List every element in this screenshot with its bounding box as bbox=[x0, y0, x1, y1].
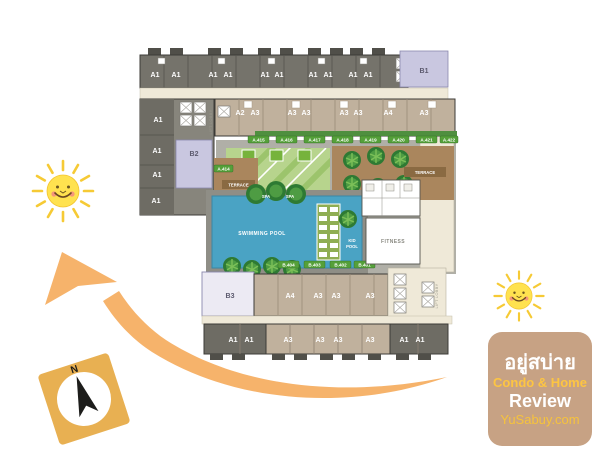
lift-left-3 bbox=[180, 115, 192, 126]
unit-label: A3 bbox=[316, 337, 325, 344]
unit-label: A1 bbox=[229, 337, 238, 344]
brand-thai-name: อยู่สบ่าย bbox=[488, 353, 592, 373]
unit-b3-label: B3 bbox=[226, 293, 235, 300]
terrace-tag: A.414 bbox=[217, 167, 230, 172]
terrace-label-right: TERRACE bbox=[415, 170, 435, 175]
sun-icon-left bbox=[33, 161, 93, 221]
unit-label: A1 bbox=[416, 337, 425, 344]
unit-label: A3 bbox=[354, 110, 363, 117]
garden-tag: A.420 bbox=[392, 138, 405, 143]
pool-tag: B.402 bbox=[334, 263, 347, 268]
lift-lobby-bottom: LIFT LOBBY bbox=[388, 268, 446, 318]
unit-label: A1 bbox=[261, 72, 270, 79]
unit-label: A1 bbox=[400, 337, 409, 344]
unit-label: A3 bbox=[284, 337, 293, 344]
garden-tag: A.422 bbox=[443, 138, 456, 143]
pool-tag: B.404 bbox=[282, 263, 295, 268]
unit-label: A1 bbox=[364, 72, 373, 79]
unit-label: A1 bbox=[349, 72, 358, 79]
compass: N bbox=[37, 352, 130, 445]
floorplan: B1 A2 A3 A3 A3 A3 A3 A4 A3 A1 A1 A1 A1 A… bbox=[140, 48, 458, 360]
unit-label: A1 bbox=[209, 72, 218, 79]
swimming-pool-label: SWIMMING POOL bbox=[238, 231, 285, 237]
pool-tag: B.403 bbox=[308, 263, 321, 268]
unit-label: A1 bbox=[172, 72, 181, 79]
bottom-corridor bbox=[202, 316, 452, 324]
balcony-stubs-bottom bbox=[210, 354, 431, 360]
unit-label: A1 bbox=[151, 72, 160, 79]
unit-label: A3 bbox=[332, 293, 341, 300]
unit-label: A1 bbox=[275, 72, 284, 79]
unit-b1-label: B1 bbox=[420, 68, 429, 75]
lift-left-2 bbox=[194, 102, 206, 113]
garden-unit-tags: A.415 A.416 A.417 A.418 A.419 A.420 A.42… bbox=[248, 136, 458, 143]
brand-review-label: Review bbox=[488, 392, 592, 410]
unit-label: A1 bbox=[245, 337, 254, 344]
lift-left-1 bbox=[180, 102, 192, 113]
lift-corridor bbox=[218, 106, 230, 117]
unit-label: A3 bbox=[420, 110, 429, 117]
unit-label: A1 bbox=[224, 72, 233, 79]
lift-lobby-label-right: LIFT LOBBY bbox=[434, 283, 439, 308]
brand-badge: อยู่สบ่าย Condo & Home Review YuSabuy.co… bbox=[488, 332, 592, 446]
garden-tag: A.416 bbox=[280, 138, 293, 143]
garden-tag: A.421 bbox=[420, 138, 433, 143]
garden-tag: A.417 bbox=[308, 138, 321, 143]
unit-label: A3 bbox=[314, 293, 323, 300]
garden-tag: A.415 bbox=[252, 138, 265, 143]
spa-area: SPA SPA bbox=[246, 181, 306, 204]
unit-label: A4 bbox=[286, 293, 295, 300]
unit-label: A3 bbox=[302, 110, 311, 117]
unit-label: A3 bbox=[288, 110, 297, 117]
terrace-label-left: TERRACE bbox=[228, 183, 248, 188]
unit-label: A1 bbox=[324, 72, 333, 79]
unit-label: A1 bbox=[152, 198, 161, 205]
unit-label: A3 bbox=[340, 110, 349, 117]
unit-label: A3 bbox=[366, 293, 375, 300]
kid-pool-label: KID bbox=[348, 238, 355, 243]
brand-subtitle: Condo & Home bbox=[488, 376, 592, 389]
pool-tree bbox=[339, 210, 357, 228]
unit-label: A3 bbox=[366, 337, 375, 344]
lift-left-4 bbox=[194, 115, 206, 126]
wc-block bbox=[362, 180, 420, 216]
unit-label: A1 bbox=[153, 148, 162, 155]
brand-site-url: YuSabuy.com bbox=[488, 413, 592, 426]
unit-label: A1 bbox=[309, 72, 318, 79]
kid-pool-label-2: POOL bbox=[346, 244, 358, 249]
sun-loungers bbox=[317, 204, 340, 260]
unit-label: A1 bbox=[154, 117, 163, 124]
sun-icon-right bbox=[494, 271, 543, 320]
unit-label: A2 bbox=[236, 110, 245, 117]
fitness-label: FITNESS bbox=[381, 239, 405, 245]
lift-lobby-label-left: LIFT LOBBY bbox=[208, 109, 213, 134]
unit-b2-label: B2 bbox=[190, 151, 199, 158]
floorplan-page: B1 A2 A3 A3 A3 A3 A3 A4 A3 A1 A1 A1 A1 A… bbox=[0, 0, 600, 450]
unit-b2 bbox=[176, 140, 212, 188]
spa-label-2: SPA bbox=[286, 194, 294, 199]
unit-label: A3 bbox=[251, 110, 260, 117]
garden-tag: A.419 bbox=[364, 138, 377, 143]
garden-tag: A.418 bbox=[336, 138, 349, 143]
unit-label: A3 bbox=[334, 337, 343, 344]
hedge-strip bbox=[255, 131, 457, 136]
spa-label-1: SPA bbox=[262, 194, 270, 199]
unit-label: A1 bbox=[153, 172, 162, 179]
fitness-room: FITNESS bbox=[366, 218, 420, 264]
unit-label: A4 bbox=[384, 110, 393, 117]
top-corridor bbox=[140, 88, 448, 99]
